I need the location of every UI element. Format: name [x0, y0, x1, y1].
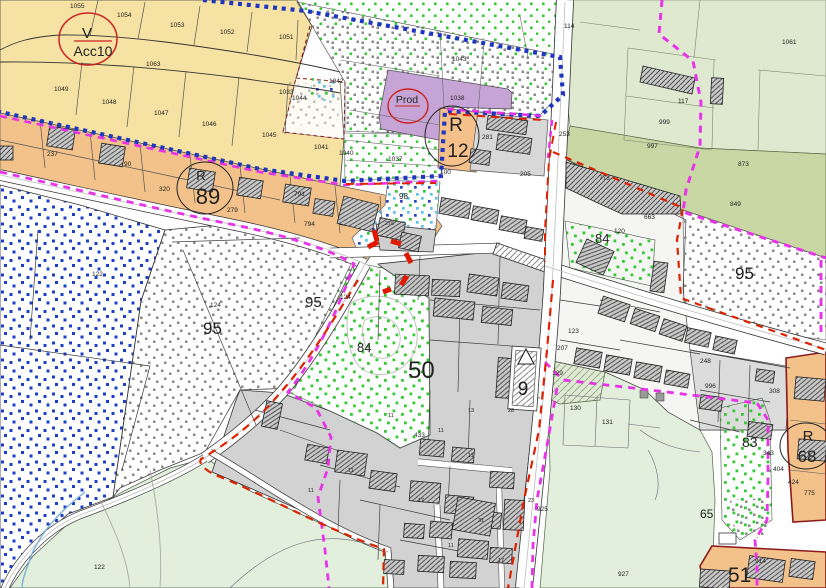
svg-text:1038: 1038	[450, 95, 465, 102]
svg-text:433: 433	[414, 432, 425, 439]
svg-text:1052: 1052	[220, 29, 235, 36]
svg-text:927: 927	[618, 571, 629, 578]
svg-text:1041: 1041	[314, 144, 329, 151]
svg-text:1046: 1046	[202, 121, 217, 128]
svg-text:1053: 1053	[170, 22, 185, 29]
svg-text:775: 775	[804, 490, 815, 497]
svg-text:84: 84	[357, 340, 371, 355]
svg-text:914: 914	[755, 558, 766, 565]
svg-text:1033: 1033	[279, 89, 294, 96]
svg-text:122: 122	[92, 271, 103, 278]
svg-text:1044: 1044	[292, 95, 307, 102]
svg-text:95: 95	[203, 319, 222, 338]
svg-text:51: 51	[728, 564, 751, 587]
svg-text:343: 343	[763, 450, 774, 457]
svg-text:11: 11	[348, 468, 354, 474]
svg-text:84: 84	[595, 231, 609, 246]
svg-text:90: 90	[124, 161, 132, 168]
svg-text:13: 13	[468, 408, 474, 414]
svg-text:873: 873	[738, 161, 749, 168]
svg-text:1043: 1043	[452, 56, 467, 63]
svg-text:95: 95	[305, 294, 322, 311]
svg-text:11: 11	[308, 488, 314, 494]
svg-text:1048: 1048	[102, 99, 117, 106]
svg-text:1054: 1054	[117, 12, 132, 19]
svg-text:17: 17	[498, 558, 504, 564]
svg-text:17: 17	[418, 498, 424, 504]
svg-text:100: 100	[440, 169, 451, 176]
svg-text:248: 248	[700, 358, 711, 365]
svg-text:Prod: Prod	[396, 94, 418, 106]
svg-text:129: 129	[552, 370, 563, 377]
svg-text:404: 404	[773, 466, 784, 473]
svg-text:253: 253	[559, 131, 570, 138]
svg-text:237: 237	[47, 151, 58, 158]
svg-text:1055: 1055	[70, 3, 85, 10]
svg-text:R: R	[449, 115, 463, 136]
svg-text:23: 23	[528, 498, 534, 504]
svg-text:31: 31	[478, 518, 484, 524]
svg-text:997: 997	[647, 143, 658, 150]
svg-text:663: 663	[644, 214, 655, 221]
svg-text:925: 925	[537, 506, 548, 513]
svg-text:50: 50	[408, 357, 435, 384]
svg-text:131: 131	[602, 419, 613, 426]
svg-text:R: R	[196, 168, 205, 183]
svg-text:130: 130	[570, 405, 581, 412]
svg-text:V: V	[82, 25, 92, 42]
svg-text:1051: 1051	[279, 34, 294, 41]
svg-text:28: 28	[508, 408, 514, 414]
svg-text:114: 114	[564, 23, 575, 30]
svg-text:68: 68	[798, 447, 817, 466]
svg-text:999: 999	[659, 119, 670, 126]
svg-text:308: 308	[769, 388, 780, 395]
svg-text:11: 11	[468, 453, 474, 459]
svg-text:11: 11	[438, 428, 444, 434]
svg-text:124: 124	[340, 294, 351, 301]
svg-text:117: 117	[678, 98, 689, 105]
svg-text:1047: 1047	[154, 110, 169, 117]
svg-text:98: 98	[399, 192, 408, 201]
svg-text:205: 205	[520, 171, 531, 178]
svg-text:996: 996	[705, 383, 716, 390]
svg-text:794: 794	[304, 221, 315, 228]
svg-text:95: 95	[735, 264, 754, 283]
svg-text:124: 124	[210, 302, 221, 309]
svg-text:65: 65	[700, 507, 714, 521]
svg-text:Acc10: Acc10	[74, 43, 113, 59]
svg-text:1040: 1040	[339, 150, 354, 157]
svg-text:1045: 1045	[262, 132, 277, 139]
svg-text:320: 320	[159, 186, 170, 193]
svg-text:1063: 1063	[146, 61, 161, 68]
svg-text:279: 279	[227, 207, 238, 214]
svg-text:1049: 1049	[54, 86, 69, 93]
svg-text:207: 207	[557, 345, 568, 352]
svg-text:R: R	[803, 428, 814, 445]
svg-text:12: 12	[447, 141, 468, 162]
svg-text:773: 773	[599, 175, 610, 182]
svg-text:123: 123	[568, 328, 579, 335]
svg-text:849: 849	[730, 201, 741, 208]
svg-text:1061: 1061	[782, 39, 797, 46]
svg-text:120: 120	[614, 228, 625, 235]
svg-text:89: 89	[196, 184, 220, 209]
svg-text:1042: 1042	[329, 78, 344, 85]
svg-text:83: 83	[742, 434, 758, 450]
svg-text:791: 791	[294, 191, 305, 198]
svg-text:281: 281	[482, 134, 493, 141]
svg-text:122: 122	[94, 564, 105, 571]
svg-text:424: 424	[788, 479, 799, 486]
svg-text:11: 11	[448, 543, 454, 549]
svg-text:276: 276	[385, 221, 394, 227]
svg-text:1037: 1037	[388, 156, 403, 163]
svg-text:9: 9	[518, 379, 529, 400]
svg-text:11: 11	[388, 413, 394, 419]
